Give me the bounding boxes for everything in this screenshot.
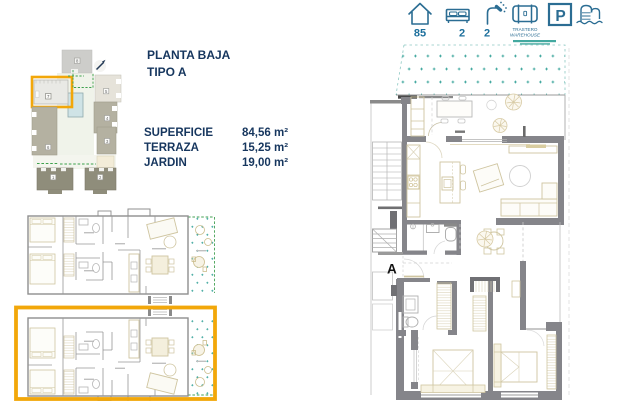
svg-text:19,00 m²: 19,00 m² [242, 157, 288, 169]
svg-text:JARDIN: JARDIN [144, 157, 187, 169]
svg-text:2: 2 [484, 28, 490, 40]
svg-text:PLANTA BAJA: PLANTA BAJA [147, 48, 231, 62]
svg-text:A: A [387, 262, 397, 277]
svg-text:SUPERFICIE: SUPERFICIE [144, 127, 213, 139]
svg-text:15,25 m²: 15,25 m² [242, 142, 288, 154]
svg-text:84,56 m²: 84,56 m² [242, 127, 288, 139]
svg-text:TRASTERO: TRASTERO [512, 27, 537, 32]
svg-text:P: P [555, 8, 565, 25]
svg-text:WAREHOUSE: WAREHOUSE [510, 33, 541, 38]
svg-text:TIPO A: TIPO A [147, 65, 187, 79]
svg-text:TERRAZA: TERRAZA [144, 142, 199, 154]
svg-text:85: 85 [414, 28, 426, 40]
svg-text:2: 2 [459, 28, 465, 40]
